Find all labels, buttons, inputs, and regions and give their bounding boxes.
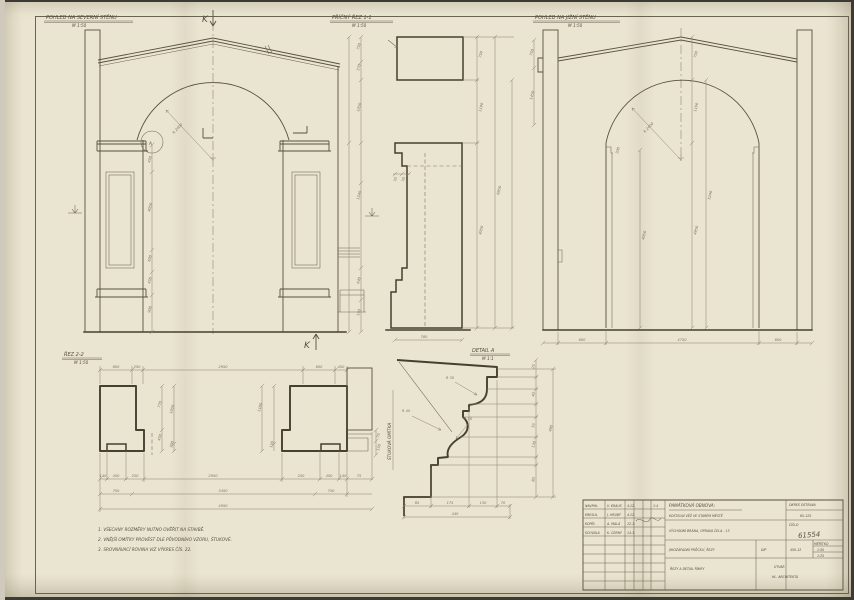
tb-row-name: J. HRUBÝ	[606, 512, 622, 517]
dim: 250	[298, 474, 306, 478]
dim: 4050	[147, 202, 153, 213]
tb-scale-2: 1:25	[817, 554, 824, 558]
drawing-sheet: POHLED NA SEVERNÍ STĚNU M 1:50	[0, 0, 854, 600]
dim-overall: 6850	[496, 185, 502, 196]
dim: 300	[615, 146, 621, 154]
dim: 750	[478, 50, 484, 58]
dim: 1450	[529, 90, 535, 101]
wall-hatch-plan	[347, 368, 372, 430]
tb-row-label: NAVRHL	[585, 504, 598, 508]
tb-row-label: SCHVÁLIL	[585, 530, 601, 535]
tb-district: OKRES OSTRAVA	[789, 503, 816, 507]
tb-row-date: 4.12.	[627, 504, 635, 508]
dim: 1190	[478, 102, 484, 113]
tb-number-label: ČÍSLO	[789, 522, 799, 527]
note-line: 3. SROVNÁVACÍ ROVINA VIZ VÝKRES ČÍS. 22.	[98, 547, 192, 552]
notes: 1. VŠECHNY ROZMĚRY NUTNO OVĚŘIT NA STAVB…	[98, 527, 232, 552]
dim: 75	[376, 432, 381, 438]
tb-order: 450-12	[790, 548, 801, 552]
dim-overall: 4950	[218, 504, 228, 508]
pilaster-panel-left	[106, 172, 134, 268]
pier-plan-right	[282, 386, 347, 451]
radius-dim: R 2400	[172, 122, 184, 135]
view-section-1-1: PŘÍČNÝ ŘEZ 1-1 M 1:50 750 370 1050 1540 …	[330, 13, 514, 342]
dim: 65	[415, 501, 420, 505]
dim: 3450	[218, 489, 228, 493]
wall-hatch-left	[85, 30, 100, 332]
dim: 1050	[169, 404, 175, 415]
radius-leader	[632, 108, 681, 160]
dim-overall: 440	[452, 512, 460, 516]
tb-drawing-number: 61554	[798, 530, 821, 540]
view-title: POHLED NA JIŽNÍ STĚNU	[535, 13, 596, 21]
dim: 55	[531, 422, 536, 428]
level-datum-symbol	[365, 208, 379, 216]
wall-hatch-left	[543, 30, 558, 330]
radius-dim: R 2400	[643, 121, 655, 134]
dim: 600	[316, 365, 324, 369]
dim: 70	[501, 501, 506, 505]
dim: 2950	[218, 365, 228, 369]
dim: 1190	[693, 102, 699, 113]
radius-label: R 45	[402, 409, 411, 413]
dim: 750	[693, 50, 699, 58]
dim: 25	[531, 363, 536, 369]
section-marker-top: K	[202, 15, 209, 25]
radius-label: R 50	[464, 417, 473, 421]
dim: 140	[340, 474, 348, 478]
tb-scale-1: 1:50	[817, 548, 824, 552]
radius-label: R 30	[446, 376, 455, 380]
tb-stage: DIP	[761, 548, 766, 552]
side-note: ŠTUKOVÁ OMÍTKA	[387, 423, 392, 460]
view-title: PŘÍČNÝ ŘEZ 1-1	[332, 13, 372, 21]
tb-row-name: V. KRAUS	[607, 504, 622, 508]
section-markers: K K	[202, 10, 319, 351]
dim: 4050	[641, 230, 647, 241]
drawing-linework: POHLED NA SEVERNÍ STĚNU M 1:50	[0, 0, 854, 600]
dim: 450	[113, 474, 121, 478]
dim: 4750	[677, 338, 687, 342]
view-title: ŘEZ 2-2	[64, 350, 84, 358]
view-plan-section-2-2: ŘEZ 2-2 M 1:50 600 250 2950 600 450 75 1…	[62, 350, 382, 512]
beam-section	[397, 37, 463, 80]
dim: 150	[376, 443, 382, 451]
dim: 750	[328, 489, 336, 493]
wall-hatch-right	[797, 30, 812, 330]
view-scale: M 1:50	[568, 23, 583, 28]
dim: 75	[357, 474, 362, 478]
tb-org-1: ÚTVAR	[774, 564, 785, 569]
level-datum-symbol	[68, 205, 82, 213]
dim: 600	[775, 338, 783, 342]
arch	[606, 80, 759, 143]
dim: 1180	[257, 402, 263, 413]
dim: 600	[113, 365, 121, 369]
section-marker-bottom: K	[304, 341, 311, 351]
dim: 4950	[693, 225, 699, 236]
dim: 750	[113, 489, 121, 493]
pier-section	[391, 143, 462, 328]
tb-heading: PAMÁTKOVÁ OBNOVA:	[669, 503, 716, 508]
tb-sheet-content: ŘEZY A DETAIL ŘÍMSY	[670, 566, 706, 571]
pilaster-panel-right	[292, 172, 320, 268]
dim: 250	[134, 365, 142, 369]
note-line: 1. VŠECHNY ROZMĚRY NUTNO OVĚŘIT NA STAVB…	[98, 527, 205, 532]
tb-row-name: K. ČERNÝ	[607, 530, 623, 535]
cornice-profile	[397, 360, 497, 516]
dim-overall: 5240	[707, 190, 713, 201]
tb-scale-label: MĚŘÍTKO	[814, 541, 829, 546]
dim: 70	[393, 176, 398, 182]
dim: 250	[132, 474, 140, 478]
tb-org-2: HL. ARCHITEKTA	[772, 575, 798, 579]
dim: 600	[579, 338, 587, 342]
pilaster-cap-left	[97, 141, 148, 151]
tb-row-date: 14.1.	[627, 531, 635, 535]
view-title: POHLED NA SEVERNÍ STĚNU	[46, 13, 117, 21]
dim: 140	[100, 474, 108, 478]
radius-leader	[166, 110, 213, 160]
pilaster-base-left	[95, 289, 148, 297]
dim: 780	[421, 335, 429, 339]
tb-row-date: 4.12.	[627, 513, 635, 517]
dim: 1050	[356, 102, 362, 113]
dim: 130	[480, 501, 488, 505]
plinth-end	[338, 290, 366, 312]
dim: 40	[531, 391, 536, 397]
tb-part: VÝCHODNÍ BRÁNA, OPRAVA ČELA - 13	[669, 528, 729, 533]
dim: 450	[326, 474, 334, 478]
view-scale: M 1:1	[482, 356, 494, 361]
view-south-elevation: POHLED NA JIŽNÍ STĚNU M 1:50 300 R 2400 …	[529, 13, 814, 345]
tb-row-name: A. MALÁ	[606, 521, 620, 526]
tb-row-date: 12.1.	[627, 522, 635, 526]
dim: 70	[401, 176, 406, 182]
dim: 80	[531, 476, 536, 482]
view-scale: M 1:50	[72, 23, 87, 28]
pilaster-base-right	[278, 289, 331, 297]
view-scale: M 1:50	[352, 23, 367, 28]
pier-plan-left	[100, 386, 144, 451]
tb-row-label: KRESLIL	[585, 513, 598, 517]
dim: 450	[338, 365, 346, 369]
title-block: NAVRHL V. KRAUS 4.12. KRESLIL J. HRUBÝ 4…	[583, 500, 843, 590]
signature-scribble	[636, 518, 661, 522]
dim: 1540	[356, 190, 362, 201]
tb-format: 1:4	[653, 504, 658, 508]
view-scale: M 1:50	[74, 360, 89, 365]
view-title: DETAIL A	[472, 348, 495, 354]
pilaster-cap-right	[278, 141, 331, 151]
dim: 175	[447, 501, 455, 505]
tb-content: JIHOZÁPADNÍ PRŮČELÍ, ŘEZY	[668, 547, 716, 552]
view-detail-a: DETAIL A M 1:1 R 30 R 45 R 50 25 40 55 1…	[387, 348, 556, 519]
tb-code: 65-125	[800, 514, 811, 518]
note-line: 2. VNĚJŠÍ OMÍTKY PROVÉST DLE PŮVODNÍHO V…	[98, 537, 232, 542]
tb-row-label: KOPÍR.	[585, 521, 596, 526]
tb-object: KOSTELNÍ VĚŽ VE STARÉM MĚSTĚ	[669, 513, 723, 518]
view-north-elevation: POHLED NA SEVERNÍ STĚNU M 1:50	[44, 13, 346, 334]
dim: 2950	[208, 474, 218, 478]
dim: 4050	[478, 225, 484, 236]
